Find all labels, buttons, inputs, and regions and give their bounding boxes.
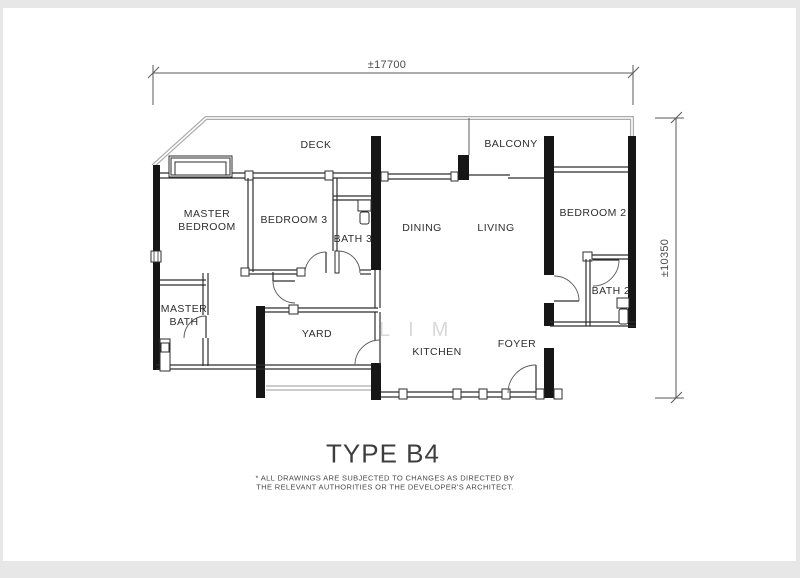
master-bath-vanity	[160, 339, 170, 371]
bath3-door	[335, 251, 360, 273]
room-label-bedroom-2: BEDROOM 2	[559, 207, 626, 219]
yard-door	[355, 340, 380, 365]
bedroom3-door	[305, 252, 326, 273]
left-wall-window	[151, 251, 161, 262]
room-label-yard: YARD	[302, 328, 332, 340]
room-label-master-bedroom: MASTER BEDROOM	[162, 208, 252, 234]
plan-title: TYPE B4	[326, 439, 440, 470]
drawing-page: LIM ±17700 ±10350 DECK BALCONY MASTER BE…	[3, 8, 796, 561]
watermark: LIM	[379, 319, 466, 342]
bath2-toilet	[617, 298, 629, 324]
room-label-kitchen: KITCHEN	[412, 346, 461, 358]
room-label-dining: DINING	[402, 222, 441, 234]
room-label-bath-2: BATH 2	[592, 285, 631, 297]
interior-walls	[156, 118, 636, 399]
room-label-deck: DECK	[301, 139, 332, 151]
room-label-foyer: FOYER	[498, 338, 536, 350]
room-label-living: LIVING	[477, 222, 514, 234]
living-corridor-door	[554, 276, 579, 301]
floor-plan-drawing	[3, 8, 800, 578]
room-label-bath-3: BATH 3	[334, 233, 373, 245]
room-label-master-bath: MASTER BATH	[152, 303, 216, 329]
disclaimer-line-2: THE RELEVANT AUTHORITIES OR THE DEVELOPE…	[256, 483, 513, 492]
bath2-door	[593, 260, 619, 286]
dimension-line-top	[148, 65, 639, 105]
room-label-bedroom-3: BEDROOM 3	[260, 214, 327, 226]
hall-door	[273, 272, 295, 303]
dimension-width-label: ±17700	[368, 59, 406, 71]
entry-door	[508, 365, 536, 393]
bath3-toilet	[358, 200, 371, 224]
dimension-height-label: ±10350	[659, 239, 671, 277]
room-label-balcony: BALCONY	[484, 138, 537, 150]
disclaimer-line-1: * ALL DRAWINGS ARE SUBJECTED TO CHANGES …	[256, 474, 515, 483]
